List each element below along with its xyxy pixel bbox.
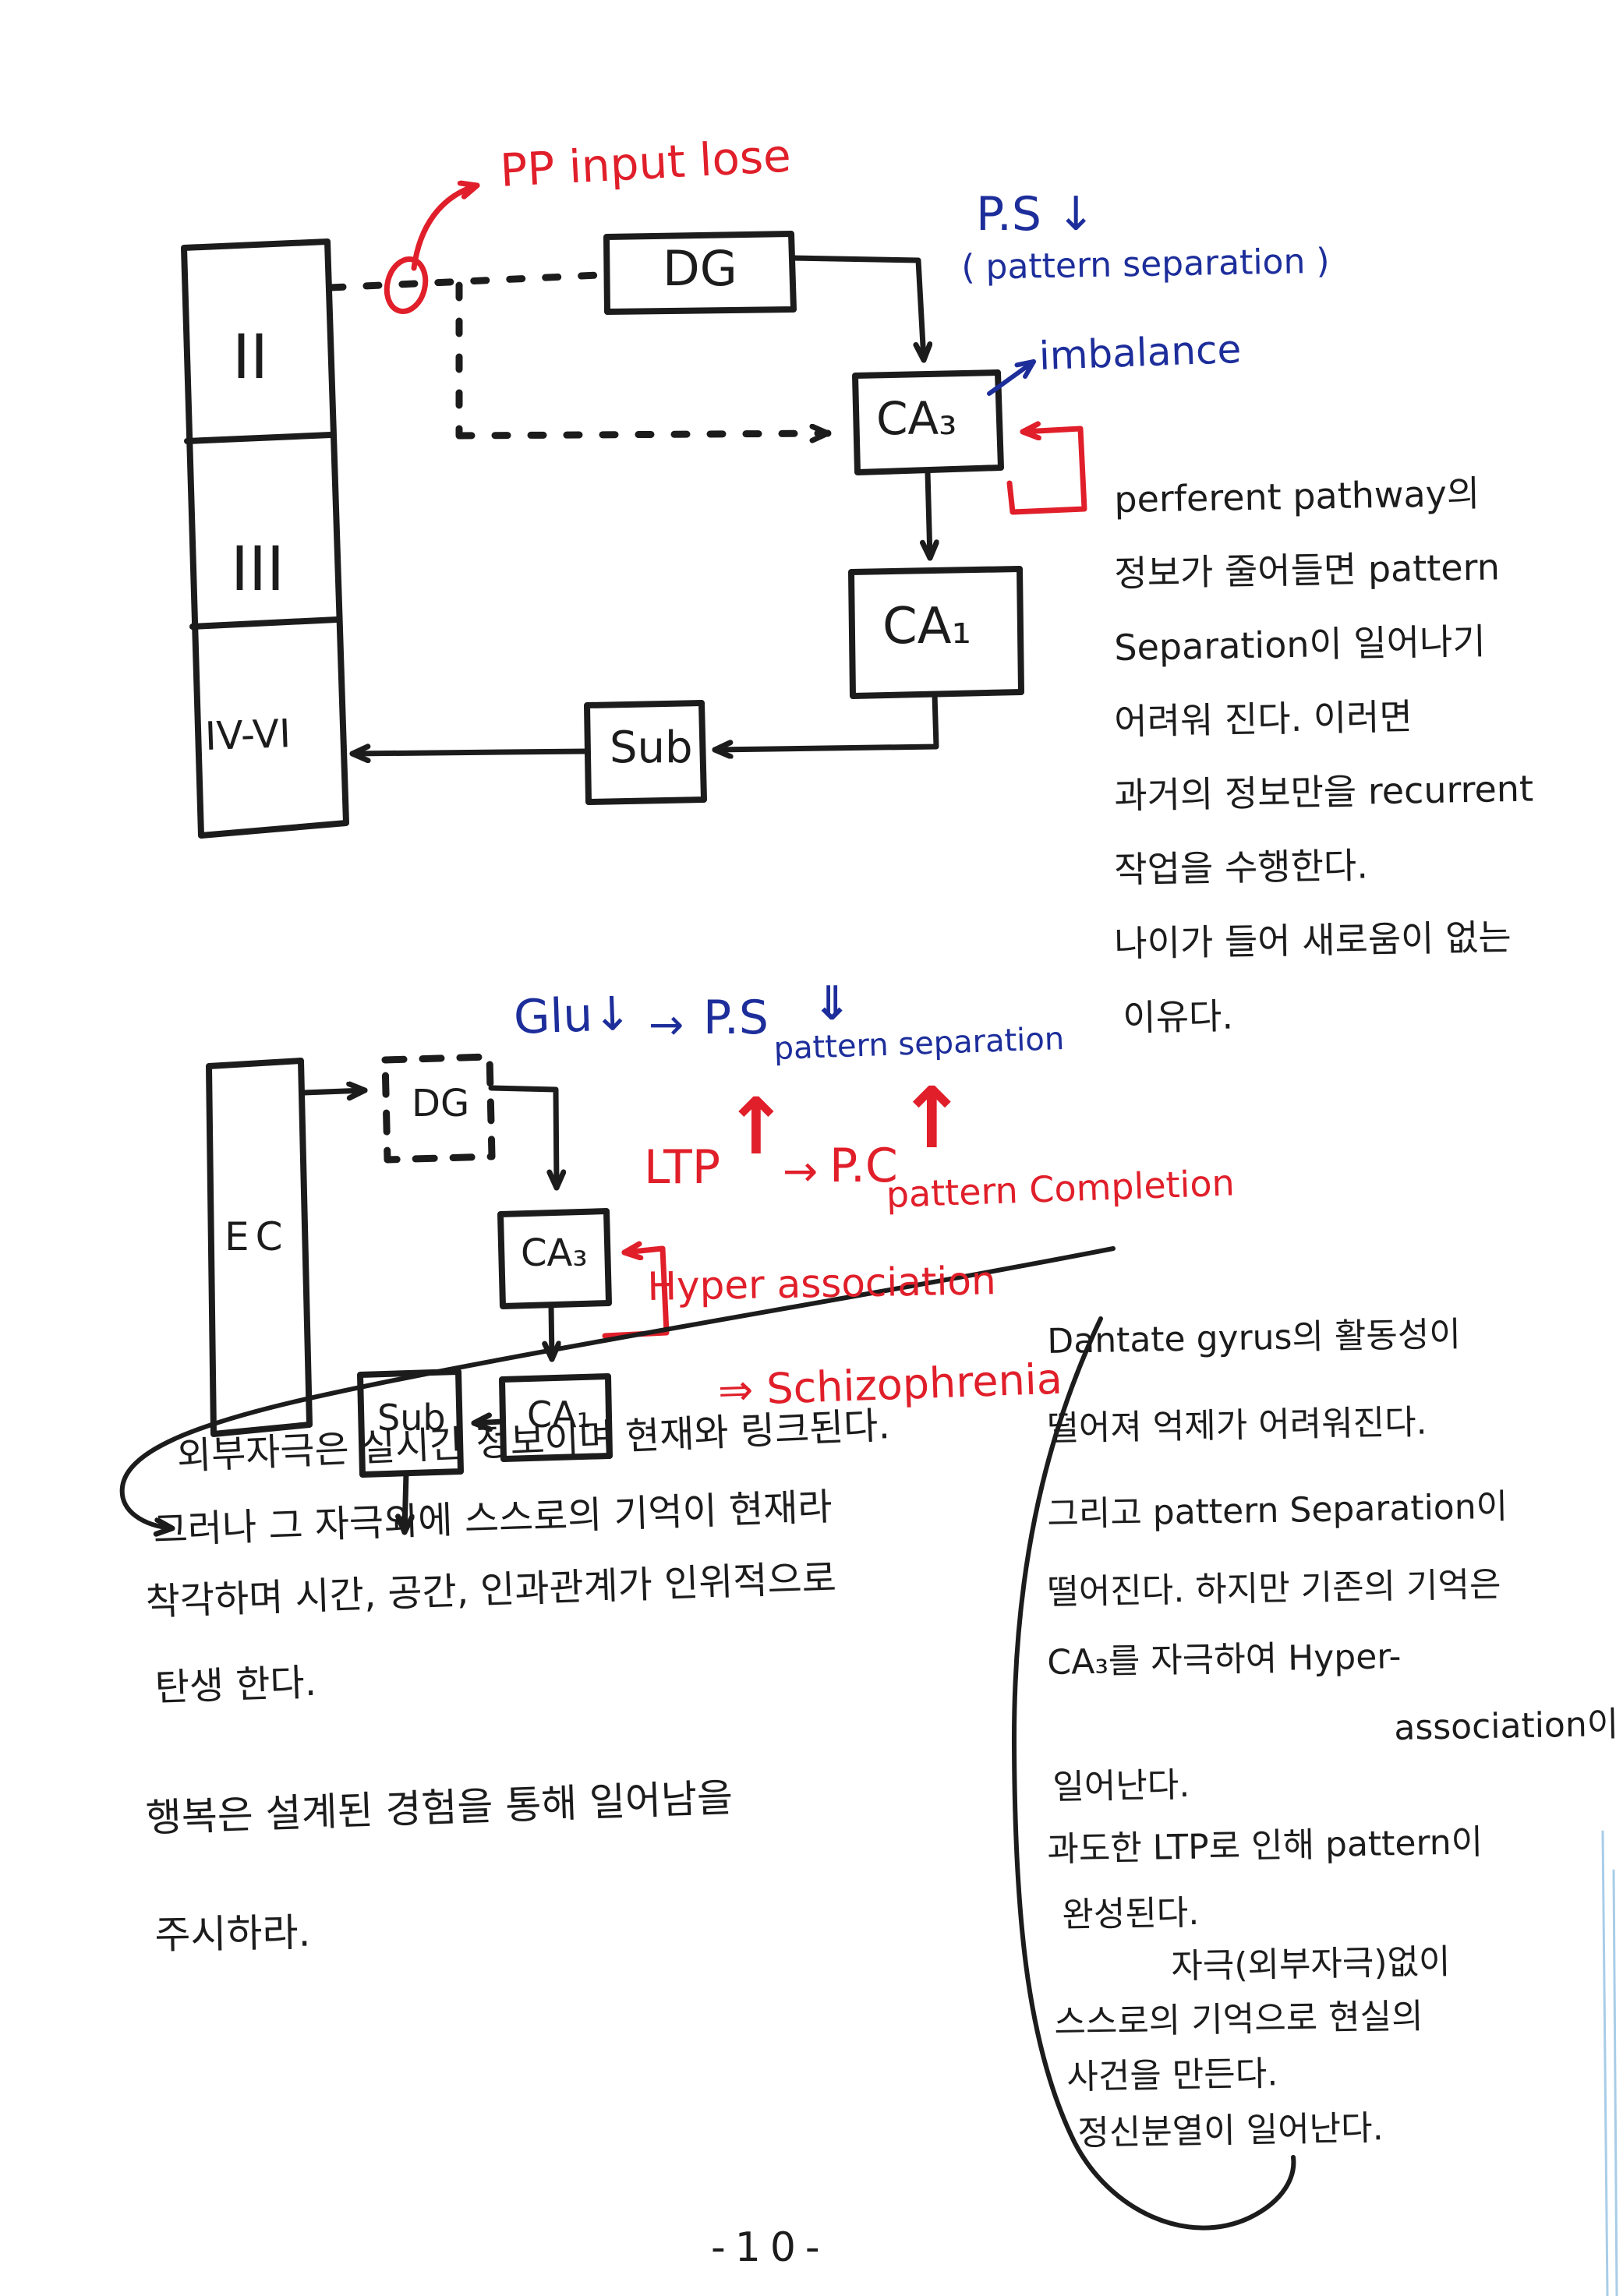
- ca3-box-2-label: CA₃: [521, 1235, 588, 1272]
- dg-box-label: DG: [663, 245, 737, 293]
- note-line: perferent pathway의: [1114, 475, 1480, 517]
- ps-double-down-icon: ⇓: [812, 980, 851, 1027]
- pc-arrow-label: →: [783, 1150, 818, 1192]
- ca1-box-label: CA₁: [882, 602, 971, 652]
- note-line: Dantate gyrus의 활동성이: [1047, 1318, 1461, 1359]
- glu-arrow-label: →: [649, 1004, 684, 1046]
- note-line: 그리고 pattern Separation이: [1047, 1490, 1508, 1532]
- arrow-sub-to-cortex: [352, 751, 586, 754]
- cortex-divider-2: [193, 620, 337, 627]
- cortex-divider-1: [187, 435, 331, 441]
- notebook-page: PP input lose P.S ↓ ( pattern separation…: [0, 0, 1623, 2296]
- imbalance-label: imbalance: [1038, 330, 1242, 376]
- ps2-label: P.S: [703, 994, 769, 1041]
- glu-down-label: Glu↓: [513, 991, 632, 1041]
- note-line: 정신분열이 일어난다.: [1077, 2111, 1384, 2151]
- arrow-ec-to-dg: [304, 1090, 365, 1093]
- arrow-dg-to-ca3: [792, 258, 924, 360]
- arrow-ca1-to-sub: [715, 694, 936, 750]
- note-line: 과거의 정보만을 recurrent: [1114, 771, 1533, 814]
- cortex-layer2-label: II: [232, 327, 268, 388]
- ca3-box-label: CA₃: [876, 396, 956, 441]
- note-line: 완성된다.: [1062, 1896, 1200, 1933]
- hyper-association-label: Hyper association: [647, 1261, 996, 1306]
- dg-box-2-label: DG: [412, 1085, 469, 1122]
- pp-input-lose-label: PP input lose: [499, 132, 792, 193]
- note-line: 작업을 수행한다.: [1114, 847, 1368, 888]
- schizophrenia-label: ⇒ Schizophrenia: [717, 1358, 1063, 1412]
- cortex-layer4-6-label: IV-VI: [204, 714, 292, 756]
- note-line: 과도한 LTP로 인해 pattern이: [1047, 1825, 1483, 1867]
- ltp-up-arrow-icon: ↑: [723, 1088, 789, 1166]
- note-line: 정보가 줄어들면 pattern: [1114, 549, 1500, 592]
- dashed-line-cortex-dg: [331, 275, 599, 288]
- note-line: 어려워 진다. 이러면: [1114, 698, 1413, 740]
- ps-down-label: P.S ↓: [976, 191, 1095, 238]
- note-line: 떨어진다. 하지만 기존의 기억은: [1047, 1568, 1501, 1610]
- scan-edge-line-1: [1603, 1832, 1607, 2296]
- dashed-arrow-to-ca3: [459, 433, 828, 436]
- ca3-recurrent-loop: [1010, 429, 1084, 512]
- ec-box-label: EC: [225, 1217, 289, 1256]
- arrow-ca3-to-ca1: [928, 472, 930, 558]
- pc-up-arrow-icon: ↑: [896, 1077, 967, 1161]
- note-line: 나이가 들어 새로움이 없는: [1114, 919, 1512, 962]
- note-line: 이유다.: [1123, 998, 1233, 1036]
- note-line: 자극(외부자극)없이: [1171, 1945, 1451, 1984]
- note-line: 떨어져 억제가 어려워진다.: [1047, 1405, 1427, 1446]
- note-line: 일어난다.: [1052, 1768, 1190, 1805]
- pattern-separation-paren-label: ( pattern separation ): [961, 245, 1330, 285]
- note-line: CA₃를 자극하여 Hyper-: [1047, 1640, 1402, 1680]
- scan-edge-line-2: [1614, 1870, 1617, 2296]
- cortex-layer3-label: III: [231, 539, 285, 600]
- note-line: 주시하라.: [154, 1913, 311, 1955]
- note-line: 탄생 한다.: [154, 1664, 317, 1707]
- ltp-label: LTP: [644, 1144, 720, 1191]
- page-number: -10-: [711, 2227, 829, 2268]
- arrow-dg-to-ca3-2: [491, 1088, 557, 1188]
- note-line: 스스로의 기억으로 현실의: [1054, 2000, 1423, 2040]
- sub-box-label: Sub: [610, 726, 693, 770]
- note-line: Separation이 일어나기: [1114, 623, 1486, 666]
- note-line: 사건을 만든다.: [1066, 2057, 1278, 2095]
- red-arrow-to-pp-label: [414, 185, 477, 268]
- note-line: association이: [1394, 1708, 1619, 1746]
- diagram1-strokes: [184, 234, 1021, 835]
